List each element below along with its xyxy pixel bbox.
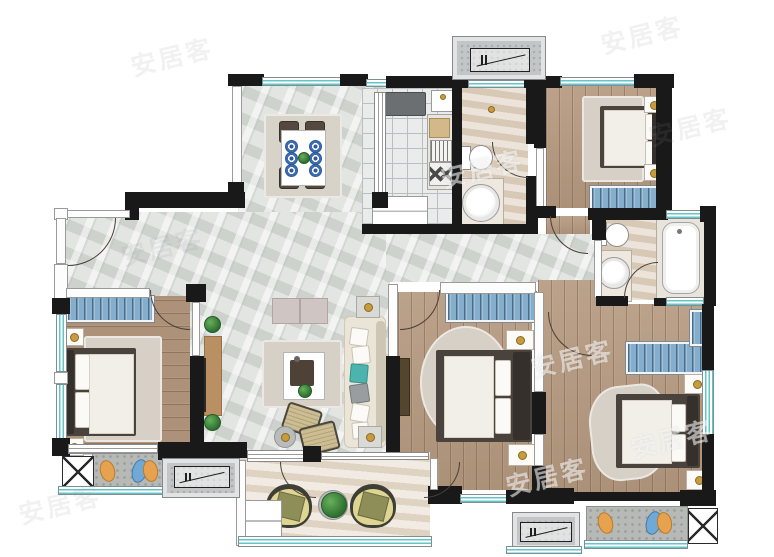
refrigerator [383,92,426,116]
lamp-icon [364,303,373,312]
headboard [687,396,698,466]
wardrobe [446,292,536,322]
gray-pillow [349,383,370,404]
pillow [495,360,511,396]
mattress [89,354,134,434]
wall [592,212,606,240]
wall [536,148,544,208]
wall [303,446,321,462]
wall [386,356,400,458]
topiary-plant [204,316,221,333]
plant [298,384,312,398]
wall [340,74,368,86]
cutting-board [429,118,450,138]
watermark: 安居客 [127,28,217,83]
balcony-sliding-door [247,450,305,462]
kitchen-sliding-door [374,92,386,194]
wall [594,240,602,298]
lamp-icon [70,333,79,342]
wall [232,86,242,184]
wall [532,392,546,434]
side-table [356,296,380,318]
sideboard [272,298,328,324]
toilet [469,145,493,170]
entry-door-leaf [56,218,66,264]
round-side-table [274,426,296,448]
pillow [350,403,371,424]
wall [372,192,388,208]
wall [626,208,668,218]
pillow [75,392,90,428]
table-centerpiece [298,152,310,164]
nightstand [64,328,84,346]
wall [452,86,462,226]
mattress [604,110,648,166]
window [366,79,388,87]
tv-console [204,336,222,416]
wall [362,224,538,234]
decor-icon [281,433,290,442]
window [238,536,432,547]
wall [52,298,70,314]
pillow [671,434,686,462]
lamp-icon [366,433,375,442]
wall [66,288,150,298]
decor-dot [294,356,300,362]
window [460,494,508,503]
tub-drain-icon [677,229,682,234]
coffee-table-tray [290,360,314,386]
ac-unit-icon [520,522,572,542]
side-table [358,426,382,448]
window [58,486,170,495]
dish-rack [430,140,452,162]
pillow [495,398,511,434]
lamp-icon [516,336,525,345]
lounge-chair [350,484,396,528]
place-setting [285,164,298,177]
wardrobe [626,342,706,374]
window [584,540,688,549]
wall [125,192,245,208]
round-basin [598,257,630,289]
wall [195,442,247,458]
faucet-icon [440,94,446,100]
wardrobe [66,296,154,322]
wall [534,434,544,466]
balcony-door [68,444,158,454]
wall [430,458,438,490]
wall [702,304,714,372]
pillow [351,345,371,365]
window [702,370,714,436]
wall [54,372,68,384]
wall [228,74,264,86]
pillow [349,327,369,347]
wall [572,492,684,501]
headboard [513,352,530,440]
wall [680,490,716,506]
round-basin [462,184,500,222]
window [56,314,67,372]
mattress [444,356,494,438]
nightstand [506,330,534,350]
pillow [75,354,90,390]
topiary-plant [204,414,221,431]
pillow [671,404,686,432]
watermark: 安居客 [597,6,687,61]
door-handle-icon [488,106,495,113]
place-setting [309,164,322,177]
ac-unit-icon [470,48,530,72]
window [56,384,67,440]
toilet [605,223,629,247]
floor-plan: 安居客 安居客 安居客 安居客 安居客 安居客 安居客 安居客 安居客 [0,0,774,557]
window [468,80,526,88]
balcony-sliding-door [321,452,429,460]
lamp-icon [518,451,527,460]
wall [704,218,716,306]
wall [440,282,536,294]
planter-box-icon [62,456,94,488]
wall [534,292,544,392]
mattress [622,400,672,464]
ac-unit-icon [174,466,230,488]
wall [192,302,200,356]
wall [534,80,546,148]
window [666,297,704,306]
window [506,546,582,554]
lamp-icon [693,380,702,389]
window [262,77,342,86]
wall [506,490,536,504]
nightstand [508,444,536,466]
planter-box-icon [688,508,718,544]
window [560,77,636,86]
teal-pillow [349,363,369,383]
potted-plant [321,492,347,518]
wall [388,284,398,358]
wall [656,86,672,216]
gas-stove-icon [429,162,452,186]
